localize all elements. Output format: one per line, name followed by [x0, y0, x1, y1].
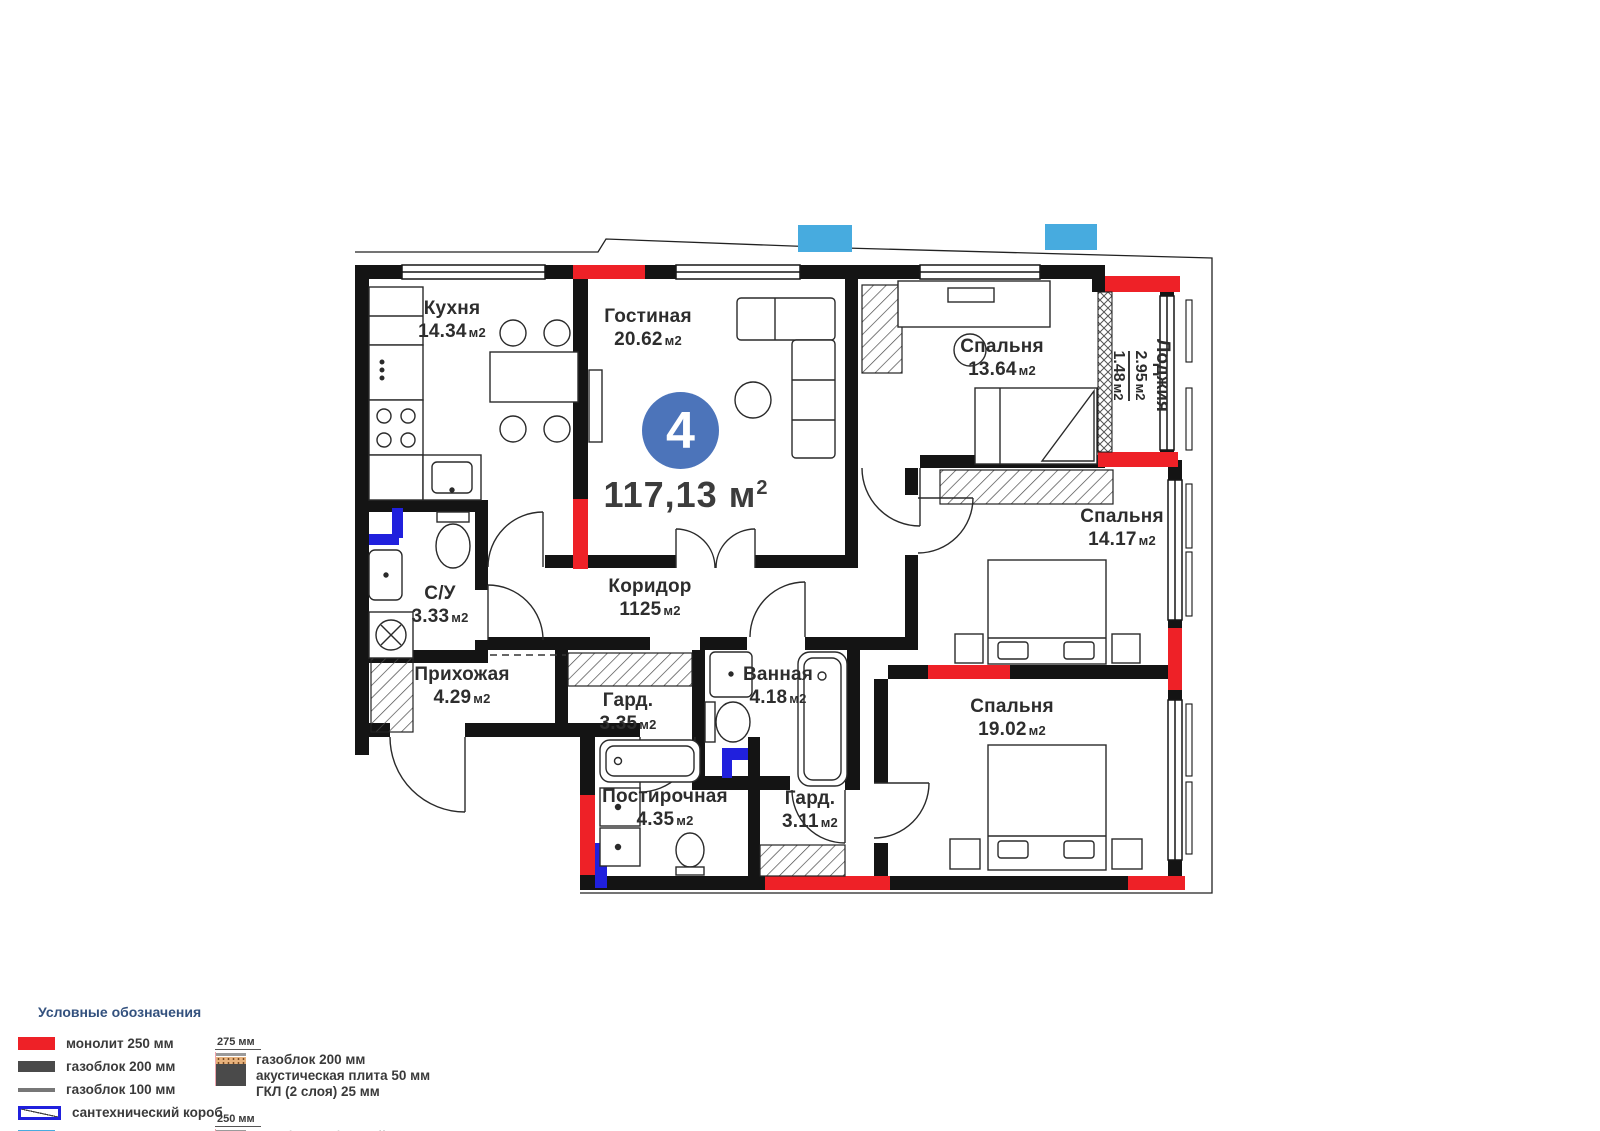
- wall-type-275-swatch: [215, 1052, 246, 1086]
- wall-type-275: 275 мм газоблок 200 мм акустическая плит…: [215, 1032, 475, 1101]
- legend-title: Условные обозначения: [38, 1004, 494, 1020]
- stove-icon: [369, 400, 423, 455]
- nightstand-icon: [1112, 634, 1140, 663]
- door-arc: [918, 498, 973, 553]
- room-label-bath: Ванная 4.18м2: [743, 664, 813, 710]
- bed-icon: [988, 560, 1106, 664]
- unit-number-badge: 4: [642, 392, 719, 469]
- window: [1168, 480, 1182, 620]
- nightstand-icon: [1112, 839, 1142, 869]
- washing-machine-icon: [600, 828, 640, 866]
- door-arc: [874, 783, 929, 838]
- round-table-icon: [735, 382, 771, 418]
- window: [676, 265, 800, 279]
- kitchen-sink-icon: [369, 455, 481, 500]
- unit-total-area: 117,13 м2: [604, 474, 769, 516]
- door-arc: [676, 529, 715, 568]
- door-arc: [750, 582, 805, 637]
- room-label-bedroom-1: Спальня 13.64м2: [960, 336, 1043, 382]
- window: [920, 265, 1040, 279]
- room-label-kitchen: Кухня 14.34м2: [418, 298, 486, 344]
- room-label-bathroom: С/У 3.33м2: [411, 583, 468, 629]
- wall-type-250: 250 мм газоблок (обшитый с 2 сторон акус…: [215, 1109, 475, 1131]
- room-label-loggia: Лоджия 2.95м2 1.48м2: [1075, 300, 1205, 450]
- bed-icon: [988, 745, 1106, 870]
- sofa-icon: [737, 298, 835, 458]
- sink-icon: [369, 550, 402, 600]
- room-label-laundry: Постирочная 4.35м2: [602, 786, 728, 832]
- ac-spots: [798, 224, 1097, 252]
- door-arc: [716, 529, 755, 568]
- dining-table-icon: [490, 320, 578, 442]
- room-label-wardrobe-1: Гард. 3.35м2: [599, 690, 656, 736]
- desk-icon: [898, 281, 1050, 327]
- nightstand-icon: [950, 839, 980, 869]
- door-arc: [390, 737, 465, 812]
- nightstand-icon: [955, 634, 983, 663]
- tv-icon: [589, 370, 602, 442]
- plumbing-box-swatch: [18, 1106, 61, 1120]
- room-label-hallway: Прихожая 4.29м2: [414, 664, 509, 710]
- gasblock-100-swatch: [18, 1088, 55, 1092]
- floor-plan-page: Кухня 14.34м2 Гостиная 20.62м2 Спальня 1…: [0, 0, 1600, 1131]
- monolith-swatch: [18, 1037, 55, 1050]
- room-label-bedroom-3: Спальня 19.02м2: [970, 696, 1053, 742]
- legend-wall-types: 275 мм газоблок 200 мм акустическая плит…: [215, 1032, 475, 1131]
- kitchen-cabinet-icon: [369, 345, 423, 400]
- room-label-corridor: Коридор 1125м2: [608, 576, 691, 622]
- toilet-icon: [676, 833, 704, 875]
- floor-plan-drawing: [0, 0, 1600, 1131]
- door-arc: [488, 512, 543, 567]
- bathtub-icon: [600, 740, 700, 782]
- toilet-icon: [436, 512, 470, 568]
- door-arc: [488, 585, 543, 640]
- washing-machine-icon: [369, 612, 413, 658]
- room-label-bedroom-2: Спальня 14.17м2: [1080, 506, 1163, 552]
- room-label-living: Гостиная 20.62м2: [604, 306, 691, 352]
- gasblock-200-swatch: [18, 1061, 55, 1072]
- window: [1168, 700, 1182, 860]
- fridge-icon: [369, 287, 423, 345]
- room-label-wardrobe-2: Гард. 3.11м2: [782, 788, 838, 834]
- window: [402, 265, 545, 279]
